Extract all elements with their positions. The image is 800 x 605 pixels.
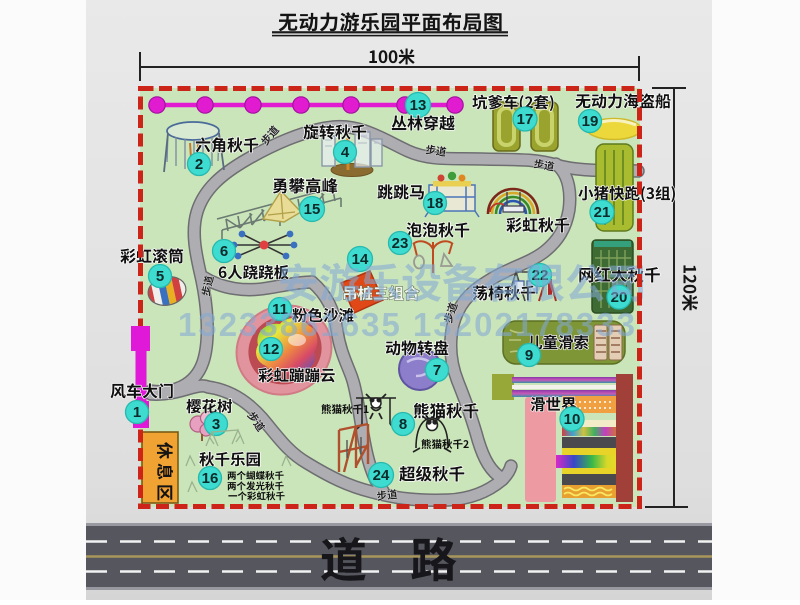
svg-text:19: 19 xyxy=(582,113,599,130)
svg-text:5: 5 xyxy=(156,268,164,285)
svg-text:14: 14 xyxy=(352,251,369,268)
svg-text:6: 6 xyxy=(220,243,228,260)
svg-text:4: 4 xyxy=(341,144,350,161)
svg-text:7: 7 xyxy=(433,362,441,379)
svg-text:24: 24 xyxy=(373,467,390,484)
svg-text:17: 17 xyxy=(517,111,534,128)
svg-text:2: 2 xyxy=(195,156,203,173)
svg-text:15: 15 xyxy=(304,201,321,218)
svg-text:21: 21 xyxy=(594,204,611,221)
svg-text:10: 10 xyxy=(564,411,581,428)
svg-text:13233861635 13202178333: 13233861635 13202178333 xyxy=(178,306,637,343)
svg-text:8: 8 xyxy=(399,416,407,433)
svg-text:9: 9 xyxy=(525,347,533,364)
svg-text:16: 16 xyxy=(202,470,219,487)
svg-text:3: 3 xyxy=(212,416,220,433)
svg-text:1: 1 xyxy=(133,404,141,421)
svg-text:23: 23 xyxy=(392,235,409,252)
svg-text:13: 13 xyxy=(410,97,427,114)
svg-text:18: 18 xyxy=(427,195,444,212)
svg-text:12: 12 xyxy=(263,341,280,358)
